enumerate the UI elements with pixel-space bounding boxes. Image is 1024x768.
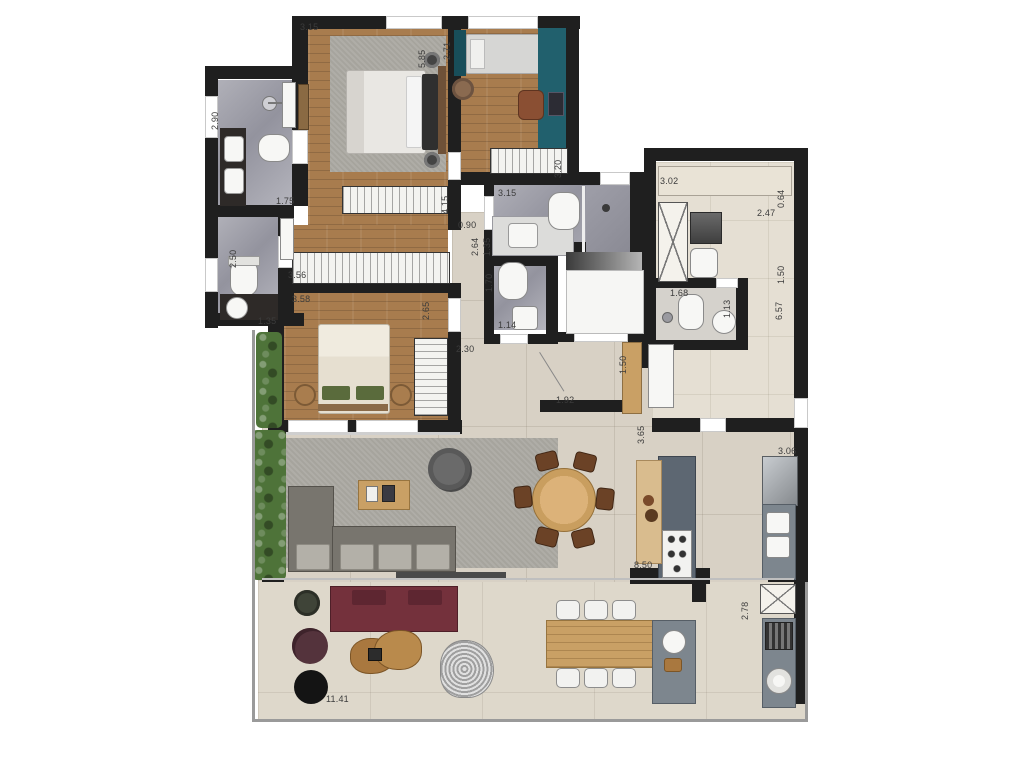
dimension-label: 3.56 xyxy=(288,270,306,280)
dimension-label: 1.68 xyxy=(670,288,688,298)
dimension-label: 1.13 xyxy=(722,300,732,318)
dimension-label: 0.64 xyxy=(776,190,786,208)
dimension-label: 5.85 xyxy=(417,50,427,68)
dimension-label: 3.15 xyxy=(300,22,318,32)
dimension-label: 2.90 xyxy=(210,112,220,130)
dimension-label: 2.65 xyxy=(421,302,431,320)
dimension-label: 0.90 xyxy=(458,220,476,230)
dimension-label: 11.41 xyxy=(326,694,349,704)
floor-plan: 3.151.751.353.563.582.300.903.151.143.02… xyxy=(0,0,1024,768)
dimension-label: 2.78 xyxy=(740,602,750,620)
dimension-label: 3.15 xyxy=(498,188,516,198)
dimension-labels: 3.151.751.353.563.582.300.903.151.143.02… xyxy=(0,0,1024,768)
dimension-label: 4.15 xyxy=(440,196,450,214)
dimension-label: 1.14 xyxy=(498,320,516,330)
dimension-label: 3.06 xyxy=(778,446,796,456)
dimension-label: 2.47 xyxy=(757,208,775,218)
dimension-label: 2.71 xyxy=(442,42,452,60)
dimension-label: 1.50 xyxy=(618,356,628,374)
dimension-label: 2.30 xyxy=(456,344,474,354)
dimension-label: 1.70 xyxy=(484,274,494,292)
dimension-label: 3.65 xyxy=(636,426,646,444)
dimension-label: 6.57 xyxy=(774,302,784,320)
dimension-label: 1.35 xyxy=(482,238,492,256)
dimension-label: 2.50 xyxy=(228,250,238,268)
dimension-label: 1.75 xyxy=(276,196,294,206)
dimension-label: 1.35 xyxy=(258,316,276,326)
dimension-label: 1.50 xyxy=(776,266,786,284)
dimension-label: 3.20 xyxy=(553,160,563,178)
dimension-label: 3.02 xyxy=(660,176,678,186)
dimension-label: 8.50 xyxy=(634,560,652,570)
dimension-label: 2.64 xyxy=(470,238,480,256)
dimension-label: 1.92 xyxy=(556,395,574,405)
dimension-label: 3.58 xyxy=(292,294,310,304)
